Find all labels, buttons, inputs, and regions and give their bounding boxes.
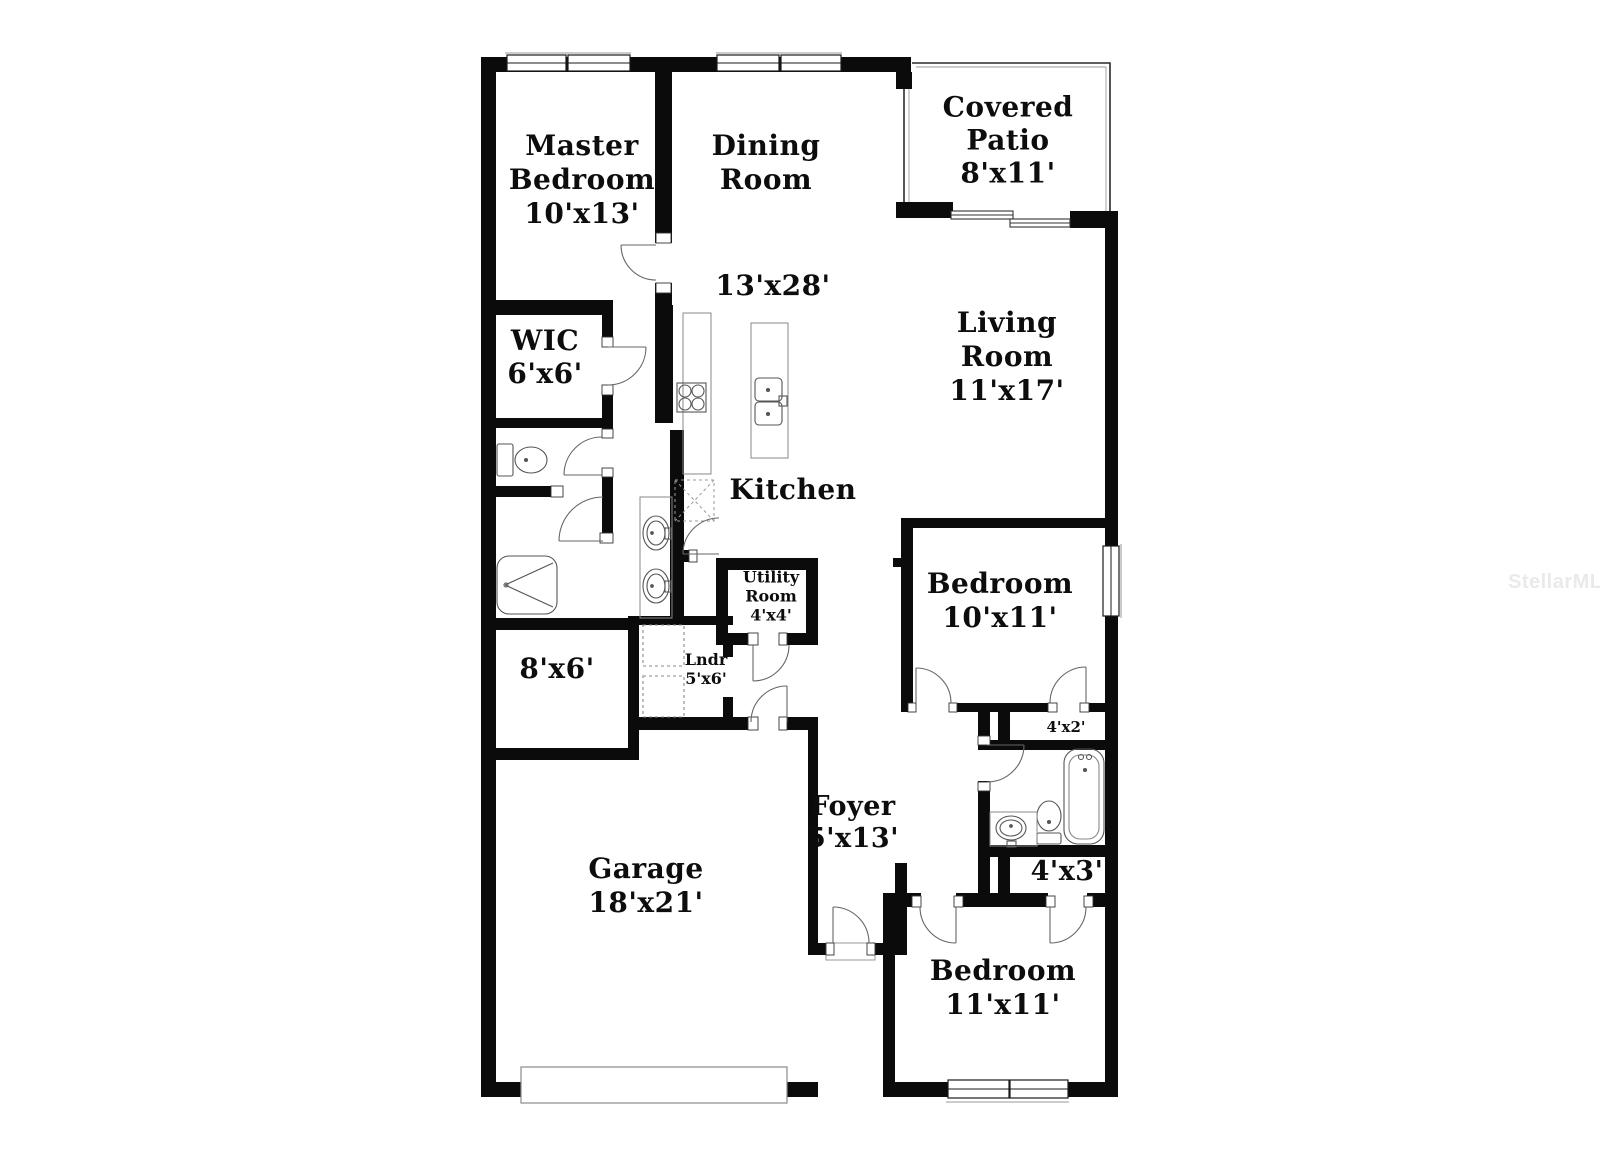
- room-label-foyer: Foyer 5'x13': [807, 791, 899, 855]
- dryer-icon: [643, 676, 684, 717]
- sliding-door: [951, 211, 1070, 227]
- room-label-utility-room: Utility Room 4'x4': [743, 568, 799, 625]
- sink-icon: [996, 816, 1026, 847]
- room-label-garage: Garage 18'x21': [588, 852, 703, 920]
- room-label-laundry: Lndr 5'x6': [685, 650, 728, 688]
- room-label-dining-room: Dining Room: [712, 129, 821, 197]
- toilet-icon: [1037, 801, 1061, 844]
- sink-icon: [643, 516, 671, 603]
- master-vanity: [640, 497, 672, 618]
- room-label-bedroom-1: Bedroom 10'x11': [927, 567, 1073, 635]
- toilet-icon: [497, 444, 547, 476]
- kitchen-counter: [683, 313, 711, 474]
- room-label-wic: WIC 6'x6': [507, 324, 582, 390]
- dimension-label-flex-space: 8'x6': [519, 652, 594, 686]
- bathtub-icon: [1064, 749, 1104, 844]
- stove-icon: [677, 383, 706, 412]
- dimension-label-closet-4x2: 4'x2': [1046, 718, 1085, 736]
- garage-door: [521, 1067, 787, 1103]
- shower-icon: [497, 556, 557, 614]
- room-label-living-room: Living Room 11'x17': [949, 306, 1064, 408]
- room-label-master-bedroom: Master Bedroom 10'x13': [509, 129, 655, 231]
- room-label-bedroom-2: Bedroom 11'x11': [930, 954, 1076, 1022]
- room-label-kitchen: Kitchen: [730, 473, 857, 507]
- island-sink-icon: [755, 378, 787, 425]
- dimension-label-kitchen-dining: 13'x28': [715, 269, 830, 303]
- washer-icon: [643, 625, 684, 666]
- stellar-mls-watermark: StellarMLS: [1508, 571, 1600, 594]
- dimension-label-closet-4x3: 4'x3': [1031, 856, 1104, 888]
- room-label-covered-patio: Covered Patio 8'x11': [943, 91, 1074, 190]
- floor-plan: Master Bedroom 10'x13' Dining Room 13'x2…: [0, 0, 1600, 1163]
